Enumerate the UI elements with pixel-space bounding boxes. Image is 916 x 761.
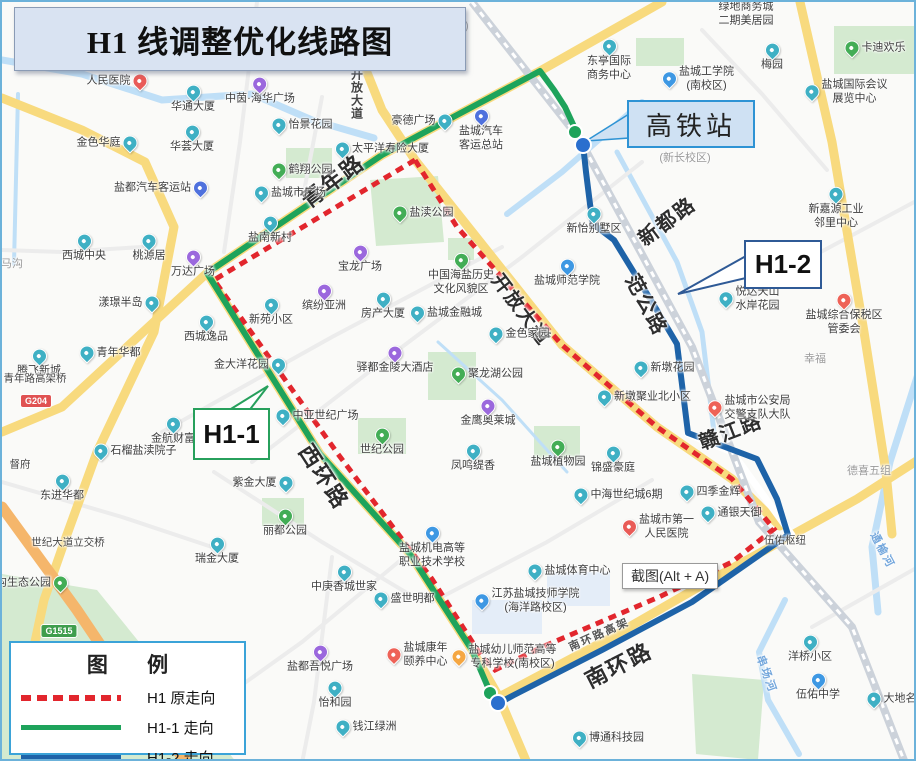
map-poi[interactable]: 盐城植物园 [531,439,586,470]
building-icon [90,440,111,461]
map-poi[interactable]: 新墩花园 [632,360,695,377]
legend-item-h1-1: H1-1 走向 [21,717,234,738]
map-poi[interactable]: 盐城机电高等职业技术学校 [399,525,465,570]
building-icon [181,122,202,143]
map-poi[interactable]: 盐城汽车客运总站 [459,108,503,153]
park-shape [636,38,684,66]
poi-label: 怡景花园 [289,118,333,132]
poi-label: 人民医院 [87,74,131,88]
map-poi[interactable]: 绿地商务城二期美居园 [719,0,774,28]
star-icon [704,397,725,418]
map-poi[interactable]: 太平洋寿险大厦 [333,141,429,158]
building-icon [594,386,615,407]
map-poi[interactable]: 豪德广场 [392,113,455,130]
green-line-sample [21,725,121,730]
poi-label: 青年华都 [97,346,141,360]
building-icon [206,534,227,555]
map-poi[interactable]: 悦达天山水岸花园 [717,285,780,313]
poi-label: 石榴盐渎院子 [111,444,177,458]
poi-label: 钱江绿洲 [353,720,397,734]
shopping-icon [249,74,270,95]
map-poi[interactable]: 钱江绿洲 [334,719,397,736]
building-icon [333,562,354,583]
callout-h1-1: H1-1 [193,408,270,460]
map-poi[interactable]: 瑞金大厦 [195,536,239,567]
school-icon [659,68,680,89]
building-icon [407,302,428,323]
park-shape [692,674,764,760]
poi-label: 紫金大厦 [233,476,277,490]
building-icon [570,484,591,505]
poi-label: 盐城市第一人民医院 [639,513,694,541]
map-poi[interactable]: 洋桥小区 [788,634,832,665]
poi-label: 盐城金融城 [427,306,482,320]
map-poi[interactable]: 博通科技园 [570,730,644,747]
map-poi[interactable]: 盐城综合保税区管委会 [806,292,883,337]
map-poi[interactable]: 通银天御 [699,505,762,522]
map-poi[interactable]: 督府 [10,458,31,471]
map-poi[interactable]: 伍佑中学 [796,672,840,703]
poi-label: 金色家园 [506,327,550,341]
orange-icon [448,646,469,667]
callout-hsr-station: 高铁站 [627,100,755,148]
map-poi[interactable]: 怡景花园 [270,117,333,134]
map-poi[interactable]: 四季金辉 [678,484,741,501]
map-poi[interactable]: 聚龙湖公园 [449,366,523,383]
poi-label: 中茵·海华广场 [225,93,295,107]
map-poi[interactable]: 中庚香城世家 [311,564,377,595]
poi-label: 四季金辉 [697,485,741,499]
poi-label: 青年路高架桥 [4,372,67,385]
map-poi[interactable]: 盐城师范学院 [534,258,600,289]
park-icon [547,437,568,458]
map-poi[interactable]: 盐都吾悦广场 [287,644,353,675]
building-icon [583,204,604,225]
map-poi[interactable]: 金鹰奥莱城 [461,398,516,429]
screenshot-hint-tooltip: 截图(Alt + A) [622,563,718,589]
poi-label: 聚龙湖公园 [468,367,523,381]
map-poi[interactable]: 盐城市公安局交警支队大队 [706,394,791,422]
map-poi[interactable]: 东亭国际商务中心 [587,38,631,83]
map-poi[interactable]: 世纪公园 [360,427,404,458]
map-poi[interactable]: 华通大厦 [171,84,215,115]
map-poi[interactable]: 中海世纪城6期 [571,487,662,504]
poi-label: 漾璟半岛 [99,296,143,310]
shopping-icon [182,247,203,268]
building-icon [182,82,203,103]
building-icon [799,632,820,653]
building-icon [259,213,280,234]
school-icon [471,590,492,611]
poi-label: 世纪大道立交桥 [31,536,105,549]
poi-label: 幸福 [804,353,826,367]
map-poi[interactable]: (新长校区) [659,152,710,166]
poi-label: 通银天御 [718,506,762,520]
map-poi[interactable]: 盐城国际会议展览中心 [803,78,888,106]
callout-h1-2: H1-2 [744,240,822,289]
building-icon [275,472,296,493]
building-icon [119,132,140,153]
highway-shield: G204 [20,394,52,408]
building-icon [251,182,272,203]
poi-label: 德喜五组 [847,465,891,479]
poi-label: 盐渎公园 [410,206,454,220]
poi-label: 中海世纪城6期 [590,488,662,502]
poi-label: 豪德广场 [392,114,436,128]
shopping-icon [313,281,334,302]
map-poi[interactable]: 中亚世纪广场 [274,408,359,425]
poi-label: 江苏盐城技师学院(海洋路校区) [492,587,580,615]
building-icon [76,342,97,363]
map-poi[interactable]: 大地名城 [865,691,916,708]
shopping-icon [477,396,498,417]
map-poi[interactable]: 中国海盐历史文化风貌区 [428,252,494,297]
building-icon [697,502,718,523]
building-icon [569,727,590,748]
poi-label: 督府 [10,458,31,471]
building-icon [434,110,455,131]
map-poi[interactable]: 世纪大道立交桥 [31,536,105,549]
building-icon [676,481,697,502]
poi-label: 中国海盐历史文化风貌区 [428,269,494,297]
map-poi[interactable]: 锦盛豪庭 [591,445,635,476]
school-icon [807,670,828,691]
building-icon [801,81,822,102]
poi-label: 博通科技园 [589,731,644,745]
map-poi[interactable]: 盐城金融城 [408,305,482,322]
park-icon [371,425,392,446]
building-icon [462,441,483,462]
poi-label: 盐城机电高等职业技术学校 [399,542,465,570]
building-icon [715,288,736,309]
building-icon [630,357,651,378]
map-poi[interactable]: 伍佑枢纽 [764,534,806,547]
building-icon [162,414,183,435]
building-icon [141,292,162,313]
map-poi[interactable]: 梅园 [761,42,783,73]
map-poi[interactable]: 金大洋花园 [214,357,288,374]
map-poi[interactable]: 房产大厦 [361,291,405,322]
map-poi[interactable]: 东进华都 [40,473,84,504]
map-poi[interactable]: 鹤翔公园 [270,162,333,179]
map-poi[interactable]: 青年华都 [78,345,141,362]
screenshot-hint-text: 截图(Alt + A) [631,568,709,584]
poi-label: 沟生态公园 [0,576,51,590]
poi-label: 金大洋花园 [214,358,269,372]
map-poi[interactable]: 卡迪欢乐 [843,40,906,57]
building-icon [51,471,72,492]
poi-label: 伍佑枢纽 [764,534,806,547]
map-poi[interactable]: 马沟 [1,258,23,272]
map-poi[interactable]: 盐南新村 [248,215,292,246]
shopping-icon [349,242,370,263]
map-poi[interactable]: 青年路高架桥 [4,372,67,385]
legend-item-label: H1 原走向 [147,687,215,708]
poi-label: 中亚世纪广场 [293,409,359,423]
legend: 图 例 H1 原走向 H1-1 走向 H1-2 走向 [9,641,246,755]
building-icon [195,312,216,333]
poi-label: (新长校区) [659,152,710,166]
map-poi[interactable]: 怡和园 [319,680,352,711]
poi-label: 大地名城 [884,692,916,706]
map-poi[interactable]: 丽都公园 [263,508,307,539]
poi-label: 鹤翔公园 [289,163,333,177]
map-poi[interactable]: 凤鸣缇香 [451,443,495,474]
park-icon [450,250,471,271]
poi-label: 盛世明都 [391,592,435,606]
poi-label: 太平洋寿险大厦 [352,142,429,156]
route-endpoint-dot [490,695,506,711]
map-poi[interactable]: 新怡别墅区 [567,206,622,237]
legend-title: 图 例 [21,649,234,679]
map-poi[interactable]: 紫金大厦 [233,475,296,492]
building-icon [138,231,159,252]
route-map-canvas[interactable]: H1 线调整优化线路图 高铁站 H1-1 H1-2 截图(Alt + A) 图 … [0,0,916,761]
map-poi[interactable]: 盐城市广场 [252,185,326,202]
park-icon [841,37,862,58]
poi-label: 盐城汽车客运总站 [459,125,503,153]
map-poi[interactable]: 华荟大厦 [170,124,214,155]
poi-label: 盐城体育中心 [545,564,611,578]
poi-label: 马沟 [1,258,23,272]
map-poi[interactable]: 万达广场 [171,249,215,280]
poi-label: 盐城市广场 [271,186,326,200]
poi-label: 盐都汽车客运站 [114,181,191,195]
map-poi[interactable]: 驿都金陵大酒店 [357,345,434,376]
shopping-icon [309,642,330,663]
building-icon [761,40,782,61]
map-poi[interactable]: 金色华庭 [77,135,140,152]
poi-label: 新墩花园 [651,361,695,375]
poi-label: 东亭国际商务中心 [587,55,631,83]
shopping-icon [384,343,405,364]
road-label: 开放大道 [349,68,366,120]
poi-label: 绿地商务城二期美居园 [719,0,774,28]
school-icon [556,256,577,277]
poi-label: 盐城国际会议展览中心 [822,78,888,106]
legend-item-original: H1 原走向 [21,687,234,708]
park-icon [50,572,71,593]
poi-label: 盐城综合保税区管委会 [806,309,883,337]
building-icon [332,138,353,159]
callout-pointer [586,114,629,141]
building-icon [598,36,619,57]
poi-label: 盐城市公安局交警支队大队 [725,394,791,422]
legend-item-h1-2: H1-2 走向 [21,747,234,761]
bus-icon [190,177,211,198]
map-poi[interactable]: 盐城幼儿师范高等专科学校(南校区) [450,643,557,671]
poi-label: 金色华庭 [77,136,121,150]
building-icon [524,560,545,581]
map-poi[interactable]: 盐都汽车客运站 [114,180,210,197]
poi-label: 盐城工学院(南校区) [679,65,734,93]
map-poi[interactable]: 德喜五组 [847,465,891,479]
map-poi[interactable]: 盐城康年颐养中心 [385,641,448,669]
map-poi[interactable]: 宝龙广场 [338,244,382,275]
map-poi[interactable]: 桃源居 [133,233,166,264]
map-poi[interactable]: 新苑小区 [249,297,293,328]
building-icon [73,231,94,252]
hospital-icon [129,70,150,91]
building-icon [272,405,293,426]
legend-item-label: H1-2 走向 [147,747,214,761]
poi-label: 新嘉源工业邻里中心 [809,203,864,231]
map-poi[interactable]: 新嘉源工业邻里中心 [809,186,864,231]
poi-label: 盐城康年颐养中心 [404,641,448,669]
map-poi[interactable]: 江苏盐城技师学院(海洋路校区) [473,587,580,615]
water-shape [14,94,18,264]
map-title-box: H1 线调整优化线路图 [14,7,466,71]
bus-icon [470,106,491,127]
building-icon [332,716,353,737]
star-icon [383,644,404,665]
map-poi[interactable]: 沟生态公园 [0,575,70,592]
map-poi[interactable]: 金色家园 [487,326,550,343]
map-poi[interactable]: 漾璟半岛 [99,295,162,312]
park-icon [268,159,289,180]
building-icon [863,688,884,709]
map-poi[interactable]: 新墩聚业北小区 [595,389,691,406]
map-poi[interactable]: 盛世明都 [372,591,435,608]
map-poi[interactable]: 幸福 [804,353,826,367]
map-poi[interactable]: 缤纷亚洲 [302,283,346,314]
school-icon [421,523,442,544]
building-icon [28,346,49,367]
building-icon [268,114,289,135]
building-icon [602,443,623,464]
map-poi[interactable]: 盐城工学院(南校区) [660,65,734,93]
building-icon [825,184,846,205]
red-dash-line-sample [21,695,121,701]
hospital-icon [619,516,640,537]
park-icon [274,506,295,527]
building-icon [372,289,393,310]
map-poi[interactable]: 中茵·海华广场 [225,76,295,107]
route-endpoint-dot [575,137,591,153]
park-icon [448,363,469,384]
poi-label: 盐城幼儿师范高等专科学校(南校区) [469,643,557,671]
poi-label: 新墩聚业北小区 [614,390,691,404]
building-icon [260,295,281,316]
map-poi[interactable]: 人民医院 [87,73,150,90]
building-icon [485,323,506,344]
poi-label: 悦达天山水岸花园 [736,285,780,313]
callout-hsr-label: 高铁站 [646,106,736,143]
callout-h1-1-label: H1-1 [203,419,259,450]
map-poi[interactable]: 石榴盐渎院子 [92,443,177,460]
highway-shield: G1515 [40,624,77,638]
blue-line-sample [21,755,121,760]
poi-label: 卡迪欢乐 [862,41,906,55]
callout-h1-2-label: H1-2 [755,249,811,280]
map-poi[interactable]: 盐城市第一人民医院 [620,513,694,541]
page-title: H1 线调整优化线路图 [87,17,393,62]
star-icon [833,290,854,311]
map-poi[interactable]: 西城逸品 [184,314,228,345]
park-icon [389,202,410,223]
map-poi[interactable]: 盐渎公园 [391,205,454,222]
map-poi[interactable]: 西城中央 [62,233,106,264]
building-icon [324,678,345,699]
building-icon [268,354,289,375]
legend-item-label: H1-1 走向 [147,717,214,738]
map-poi[interactable]: 盐城体育中心 [526,563,611,580]
